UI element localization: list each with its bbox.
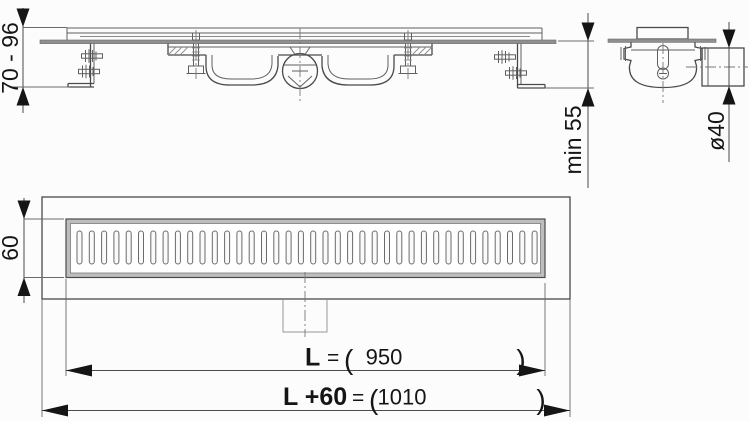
floor-plate [40, 40, 556, 44]
grate-slot [311, 231, 316, 264]
arrow-down-icon [723, 30, 736, 49]
grate-slot [348, 231, 353, 264]
grate-slot [397, 231, 402, 264]
grate-slot [151, 231, 156, 264]
dim-grate-width: 60 [0, 198, 64, 303]
wing-bolt [506, 66, 527, 80]
grate-slot [89, 231, 94, 264]
side-view [40, 28, 556, 102]
grate-slot [385, 231, 390, 264]
total-length-equals: = [352, 387, 364, 410]
central-siphon [283, 28, 318, 102]
grate-slot [77, 231, 82, 264]
technical-drawing: 70 - 96 min 55 ø40 [0, 0, 750, 421]
arrow-up-icon [723, 86, 736, 105]
grate-slot [372, 231, 377, 264]
grate-slot [212, 231, 217, 264]
grate-slot [249, 231, 254, 264]
grate-slot [225, 231, 230, 264]
grate-slot [434, 231, 439, 264]
arrow-left-icon [42, 405, 68, 417]
dim-height-range: 70 - 96 [0, 8, 70, 113]
drain-body [168, 28, 432, 102]
arrow-left-icon [66, 365, 92, 377]
channel-cross-section [637, 28, 688, 40]
grate-slot [163, 231, 168, 264]
top-view [42, 197, 570, 337]
grate-slot [471, 231, 476, 264]
grate-slot [274, 231, 279, 264]
wing-bolt [82, 49, 103, 63]
wing-bolt [495, 50, 516, 64]
grate-slot [483, 231, 488, 264]
dim-min-depth: min 55 [545, 13, 595, 188]
grate-slot [114, 231, 119, 264]
grate-slot [286, 231, 291, 264]
left-seal-hatch [168, 47, 188, 55]
left-trap-tube [206, 55, 278, 85]
right-seal-hatch [412, 47, 432, 55]
total-length-value: 1010 [378, 385, 427, 410]
grate-slot [102, 231, 107, 264]
height-range-label: 70 - 96 [0, 22, 23, 94]
flange-plate [608, 39, 716, 42]
grate-slot [262, 231, 267, 264]
grate-slot [126, 231, 131, 264]
pipe-diameter-label: ø40 [703, 111, 729, 151]
min-depth-label: min 55 [560, 105, 586, 174]
grate-slot [360, 231, 365, 264]
arrow-down-icon [18, 201, 31, 220]
grate-slot [200, 231, 205, 264]
channel-rim [67, 28, 542, 40]
arrow-down-icon [582, 23, 595, 42]
grate-slot [175, 231, 180, 264]
grate-slot [237, 231, 242, 264]
length-label: L [305, 344, 320, 372]
left-bracket [68, 44, 103, 87]
total-length-label: L +60 [283, 383, 347, 411]
length-equals: = [327, 347, 339, 370]
grate-slot [508, 231, 513, 264]
total-length-close-paren: ) [536, 384, 545, 415]
grate-slot [446, 231, 451, 264]
dim-length: L = ( 950 ) [66, 279, 545, 377]
right-trap-tube [322, 55, 394, 85]
grate-slot [323, 231, 328, 264]
arrow-up-icon [582, 88, 595, 107]
dim-pipe-diameter: ø40 [703, 22, 736, 162]
grate-slot [335, 231, 340, 264]
grate-slot [421, 231, 426, 264]
arrow-right-icon [544, 405, 570, 417]
grate-width-label: 60 [0, 235, 23, 261]
grate-slot [409, 231, 414, 264]
right-bracket [495, 44, 546, 88]
grate-slot [495, 231, 500, 264]
arrow-up-icon [18, 278, 31, 297]
length-value: 950 [366, 345, 403, 370]
length-open-paren: ( [344, 344, 354, 375]
grate-slot [298, 231, 303, 264]
drawing-canvas: 70 - 96 min 55 ø40 [0, 0, 750, 421]
grate-slot [458, 231, 463, 264]
grate-slot [532, 231, 537, 264]
wing-bolt [79, 65, 100, 79]
grate-slot [188, 231, 193, 264]
length-close-paren: ) [516, 344, 525, 375]
grate-slot [139, 231, 144, 264]
grate-slot [520, 231, 525, 264]
